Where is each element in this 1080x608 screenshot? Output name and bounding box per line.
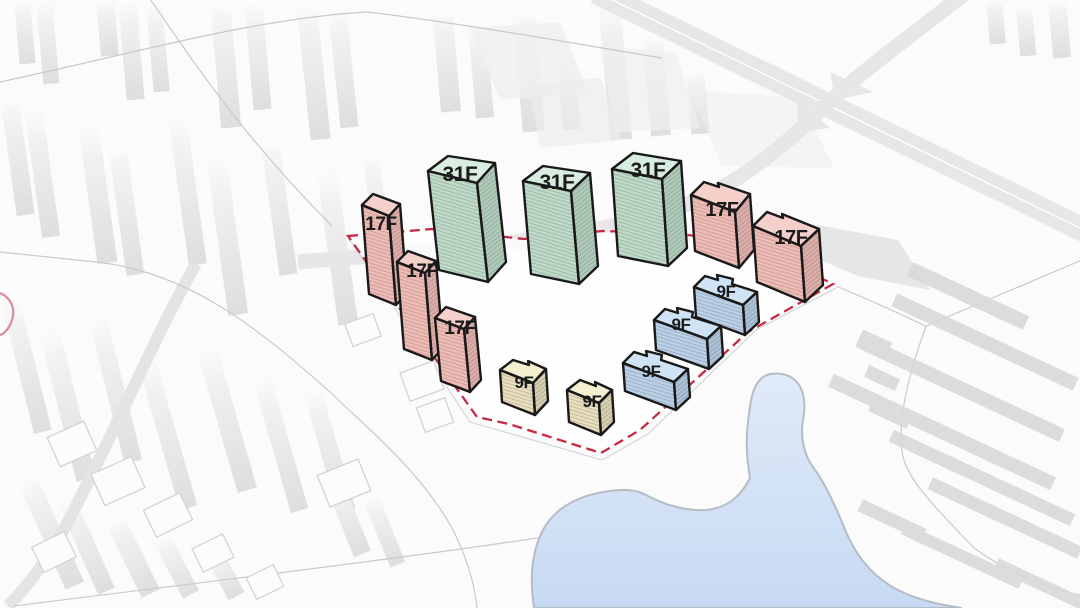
floor-label: 17F bbox=[365, 214, 397, 235]
floor-label: 31F bbox=[631, 159, 667, 182]
building-west-slab-lower: 17F bbox=[435, 307, 481, 392]
floor-label: 9F bbox=[716, 282, 735, 301]
floor-label: 9F bbox=[514, 373, 533, 392]
floor-label: 17F bbox=[444, 318, 476, 339]
floor-label: 9F bbox=[582, 392, 601, 411]
floor-label: 9F bbox=[641, 362, 660, 381]
floor-label: 31F bbox=[540, 171, 576, 194]
building-west-slab-middle: 17F bbox=[397, 251, 443, 360]
massing-diagram: 31F31F31F17F17F17F17F17F9F9F9F9F9F bbox=[0, 0, 1080, 608]
floor-label: 17F bbox=[705, 199, 738, 221]
diagram-canvas: 31F31F31F17F17F17F17F17F9F9F9F9F9F bbox=[0, 0, 1080, 608]
floor-label: 9F bbox=[671, 315, 690, 334]
floor-label: 17F bbox=[774, 227, 807, 249]
floor-label: 17F bbox=[406, 261, 438, 282]
building-tower-west: 31F bbox=[428, 156, 506, 282]
building-tower-east: 31F bbox=[612, 153, 687, 266]
floor-label: 31F bbox=[443, 163, 479, 186]
building-tower-center: 31F bbox=[523, 166, 598, 284]
